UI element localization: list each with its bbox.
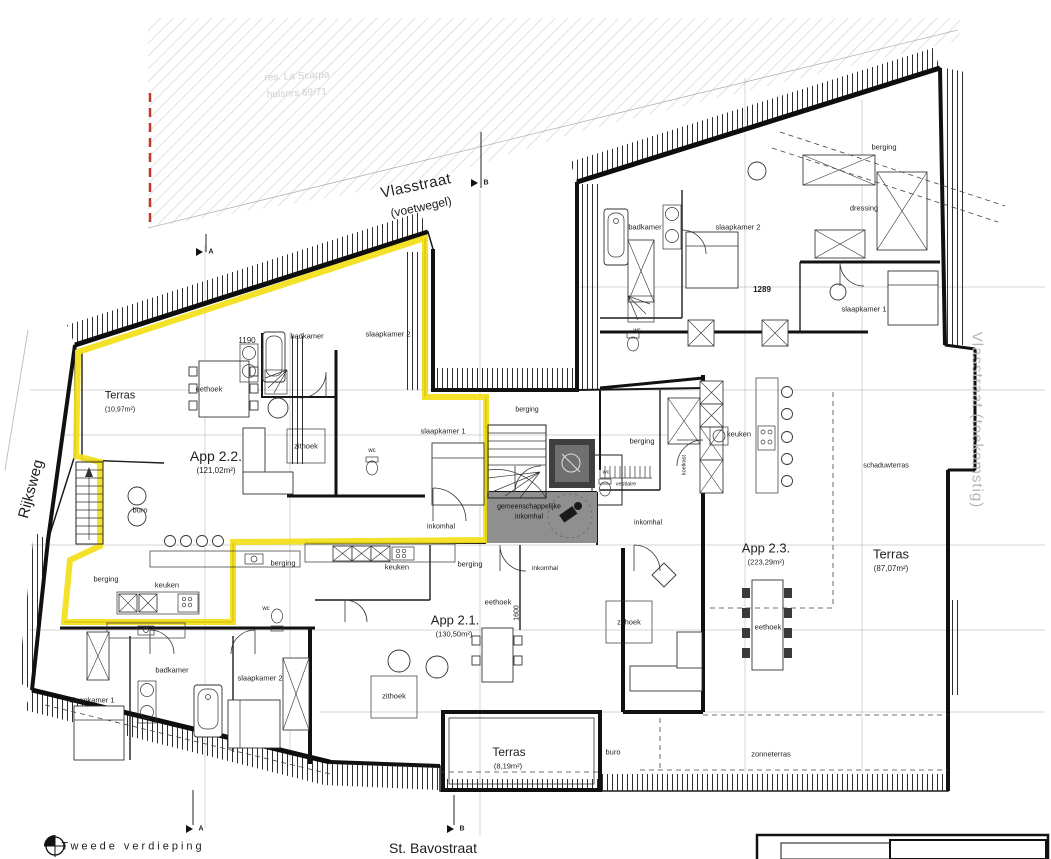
- room-label-dressing: dressing: [850, 204, 878, 212]
- room-label-wc: wc: [368, 448, 375, 454]
- bed: [432, 443, 484, 505]
- apartment-area-app22: (121,02m²): [196, 467, 235, 475]
- section-marker-b-bottom: B: [459, 826, 464, 833]
- elevator-icon: [549, 439, 595, 488]
- wardrobe: [87, 632, 109, 680]
- apartment-label-app22: App 2.2.: [190, 449, 242, 463]
- bed: [888, 271, 938, 325]
- room-label-eethoek: eethoek: [755, 623, 782, 631]
- room-label-koelkast: koelkast: [682, 455, 688, 475]
- dimension-1190: 1190: [238, 337, 255, 345]
- room-label-wc: wc: [633, 328, 640, 334]
- tall-cabinet: [668, 398, 700, 444]
- room-label-berging: berging: [871, 143, 896, 151]
- wardrobe: [283, 658, 309, 730]
- title-block: [757, 835, 1048, 859]
- dimension-1600: 1600: [514, 605, 521, 621]
- room-label-berging: berging: [457, 560, 482, 568]
- apartment-label-app23: App 2.3.: [742, 542, 790, 555]
- hall-label-line2: inkomhal: [515, 514, 543, 521]
- room-label-wc: wc: [262, 606, 269, 612]
- room-label-berging: berging: [515, 407, 538, 414]
- room-label-eethoek: eethoek: [196, 385, 223, 393]
- terrace-label-zonneterras: zonneterras: [751, 750, 791, 758]
- terrace-label-app21: Terras: [492, 746, 525, 758]
- armchair: [426, 656, 448, 678]
- wardrobe: [877, 172, 927, 250]
- room-label-zithoek: zithoek: [617, 618, 641, 626]
- floor-plan-drawing: [0, 0, 1051, 859]
- room-label-slaapkamer2: slaapkamer 2: [365, 330, 410, 338]
- room-label-slaapkamer2: slaapkamer 2: [715, 223, 760, 231]
- armchair: [748, 162, 766, 180]
- room-label-eethoek: eethoek: [485, 598, 512, 606]
- floor-title: Tweede verdieping: [61, 842, 204, 853]
- street-label-st-bavostraat: St. Bavostraat: [389, 841, 477, 855]
- wardrobe: [815, 230, 865, 258]
- section-marker-a-top: A: [208, 249, 213, 256]
- terrace-label-app22: Terras: [105, 391, 136, 402]
- room-label-slaapkamer1: slaapkamer 1: [420, 427, 465, 435]
- room-label-buro: buro: [132, 506, 147, 514]
- floor-plan-page: Vlasstraat (voetwegel) Rijksweg St. Bavo…: [0, 0, 1051, 859]
- room-label-berging: berging: [93, 575, 118, 583]
- bed: [228, 700, 280, 748]
- room-label-keuken: keuken: [727, 430, 751, 438]
- room-label-slaapkamer2: slaapkamer 2: [237, 674, 282, 682]
- room-label-buro: buro: [605, 748, 620, 756]
- bathtub: [194, 685, 222, 737]
- terrace-label-app23: Terras: [873, 548, 909, 561]
- bathtub: [604, 209, 628, 265]
- room-label-zithoek: zithoek: [294, 442, 318, 450]
- room-label-slaapkamer1: slaapkamer 1: [69, 696, 114, 704]
- room-label-berging: berging: [629, 437, 654, 445]
- terrace-label-schaduwterras: schaduwterras: [863, 463, 909, 470]
- wardrobe: [628, 240, 654, 302]
- bed: [686, 232, 738, 288]
- dimension-1289: 1289: [753, 286, 771, 294]
- room-label-vestiaire: vestiaire: [616, 482, 636, 488]
- terrace-area-app21: (8,19m²): [494, 762, 522, 770]
- armchair: [388, 650, 410, 672]
- section-marker-a-bottom: A: [198, 826, 203, 833]
- room-label-badkamer: badkamer: [628, 223, 661, 231]
- room-label-zithoek: zithoek: [382, 692, 406, 700]
- room-label-inkomhal: inkomhal: [427, 524, 455, 531]
- terrace-area-app22: (10,97m²): [105, 407, 135, 414]
- section-marker-b-top: B: [483, 180, 488, 187]
- cabinet: [762, 320, 788, 346]
- terrace-area-app23: (87,07m²): [874, 565, 909, 573]
- room-label-keuken: keuken: [155, 581, 179, 589]
- desk-chair: [128, 487, 146, 505]
- room-label-wc: wc: [603, 470, 610, 476]
- apartment-label-app21: App 2.1.: [431, 614, 479, 627]
- room-label-badkamer: badkamer: [290, 332, 323, 340]
- street-label-vlasstraat-toekomstig: Vlasstraat (toekomstig): [970, 332, 985, 508]
- hall-label-line1: gemeenschappelijke: [497, 504, 561, 511]
- room-label-slaapkamer1: slaapkamer 1: [841, 305, 886, 313]
- armchair: [830, 284, 846, 300]
- wardrobe: [803, 155, 875, 185]
- armchair: [268, 398, 288, 418]
- apartment-area-app21: (130,50m²): [436, 630, 473, 638]
- apartment-area-app23: (223,29m²): [748, 558, 785, 566]
- room-label-badkamer: badkamer: [155, 666, 188, 674]
- cabinet: [688, 320, 714, 346]
- room-label-inkomhal: inkomhal: [634, 520, 662, 527]
- room-label-inkomhal: inkomhal: [532, 566, 558, 573]
- room-label-berging: berging: [270, 559, 295, 567]
- room-label-keuken: keuken: [385, 563, 409, 571]
